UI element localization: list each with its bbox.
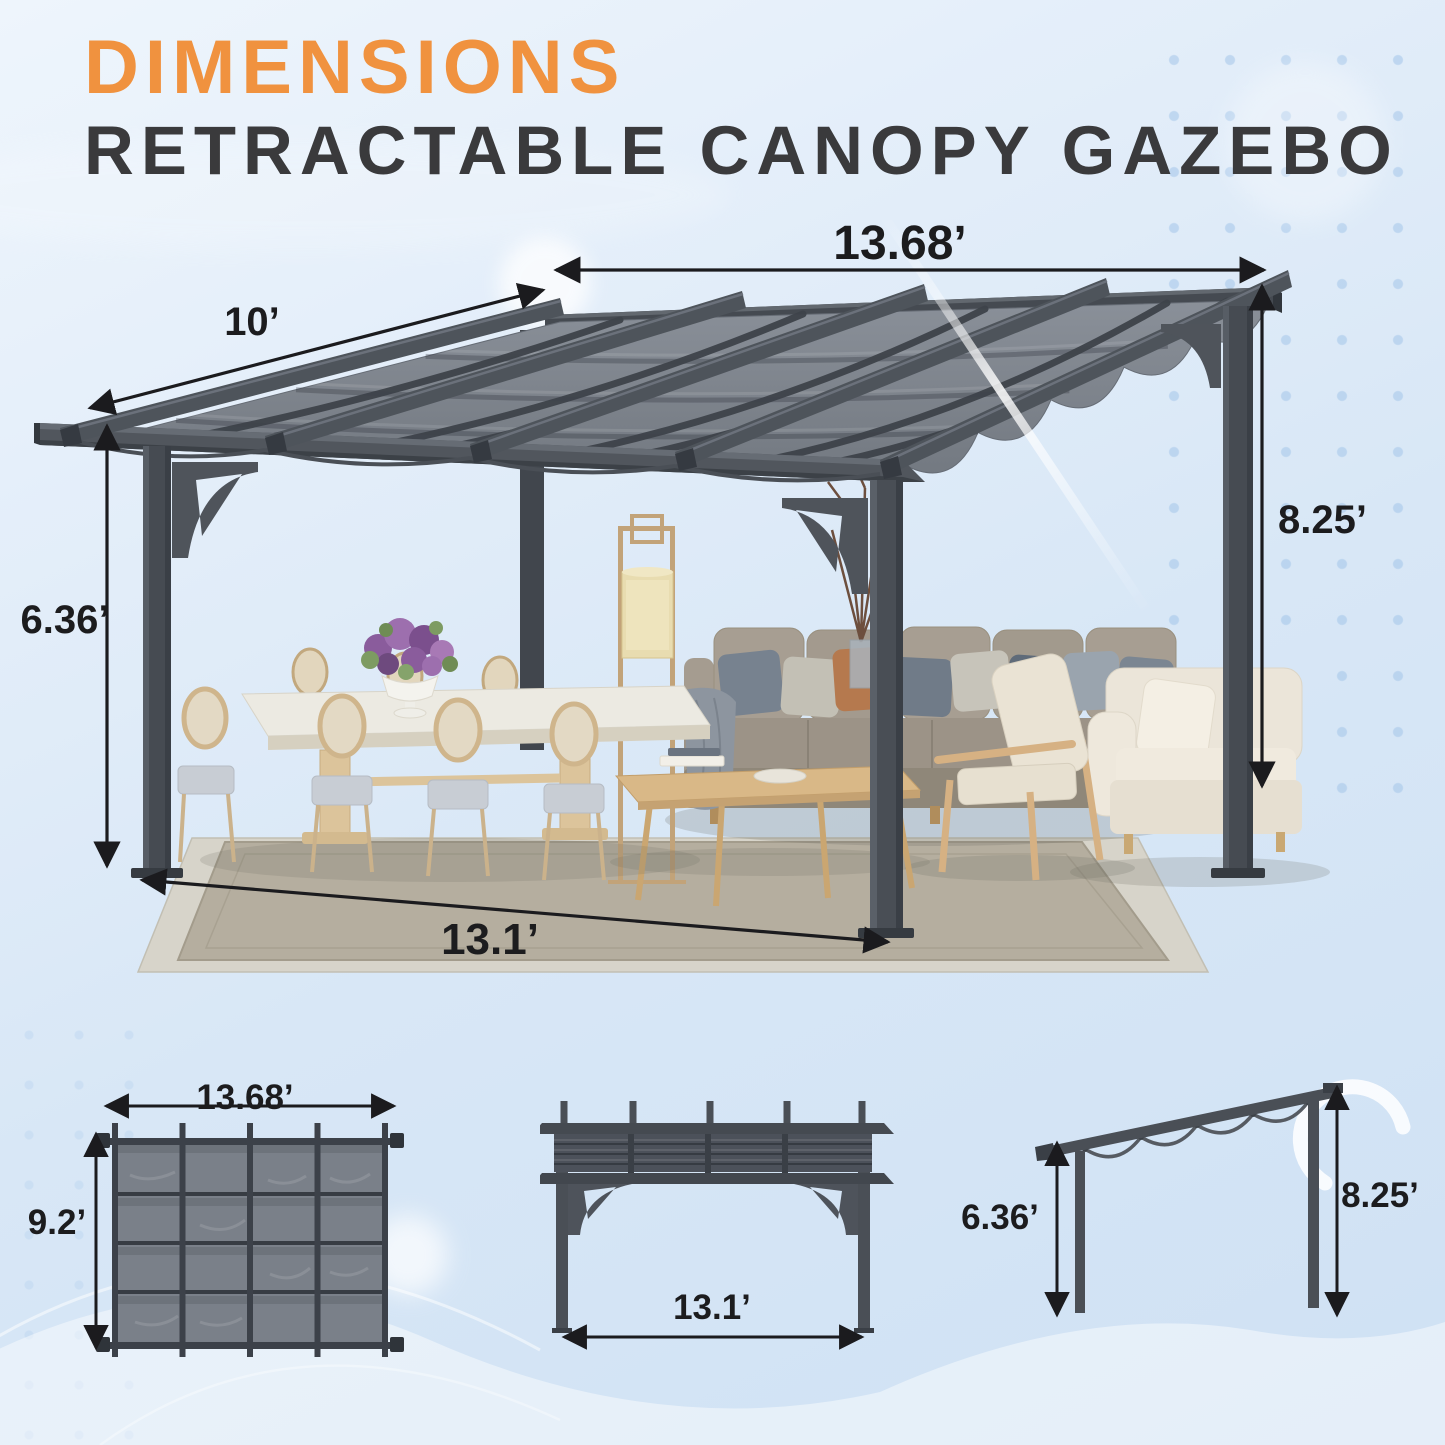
product-dimensions-page: DIMENSIONS RETRACTABLE CANOPY GAZEBO bbox=[0, 0, 1445, 1445]
sloped-beam bbox=[1043, 1092, 1335, 1153]
dim-label-rafter-depth: 10’ bbox=[192, 302, 312, 342]
dim-label-top-view-width: 9.2’ bbox=[2, 1205, 112, 1240]
dim-label-top-view-length: 13.68’ bbox=[145, 1080, 345, 1115]
dim-label-back-height: 8.25’ bbox=[1278, 500, 1445, 540]
dim-label-canopy-length: 13.68’ bbox=[775, 220, 1025, 268]
post-front-left bbox=[131, 446, 258, 878]
page-title: DIMENSIONS bbox=[84, 30, 625, 106]
dim-label-post-spacing: 13.1’ bbox=[390, 918, 590, 962]
dim-label-side-front-height: 6.36’ bbox=[900, 1200, 1100, 1235]
dim-label-front-view-width: 13.1’ bbox=[612, 1290, 812, 1325]
page-subtitle: RETRACTABLE CANOPY GAZEBO bbox=[84, 116, 1399, 185]
dim-label-front-height: 6.36’ bbox=[5, 600, 125, 640]
dim-label-side-back-height: 8.25’ bbox=[1280, 1178, 1445, 1213]
